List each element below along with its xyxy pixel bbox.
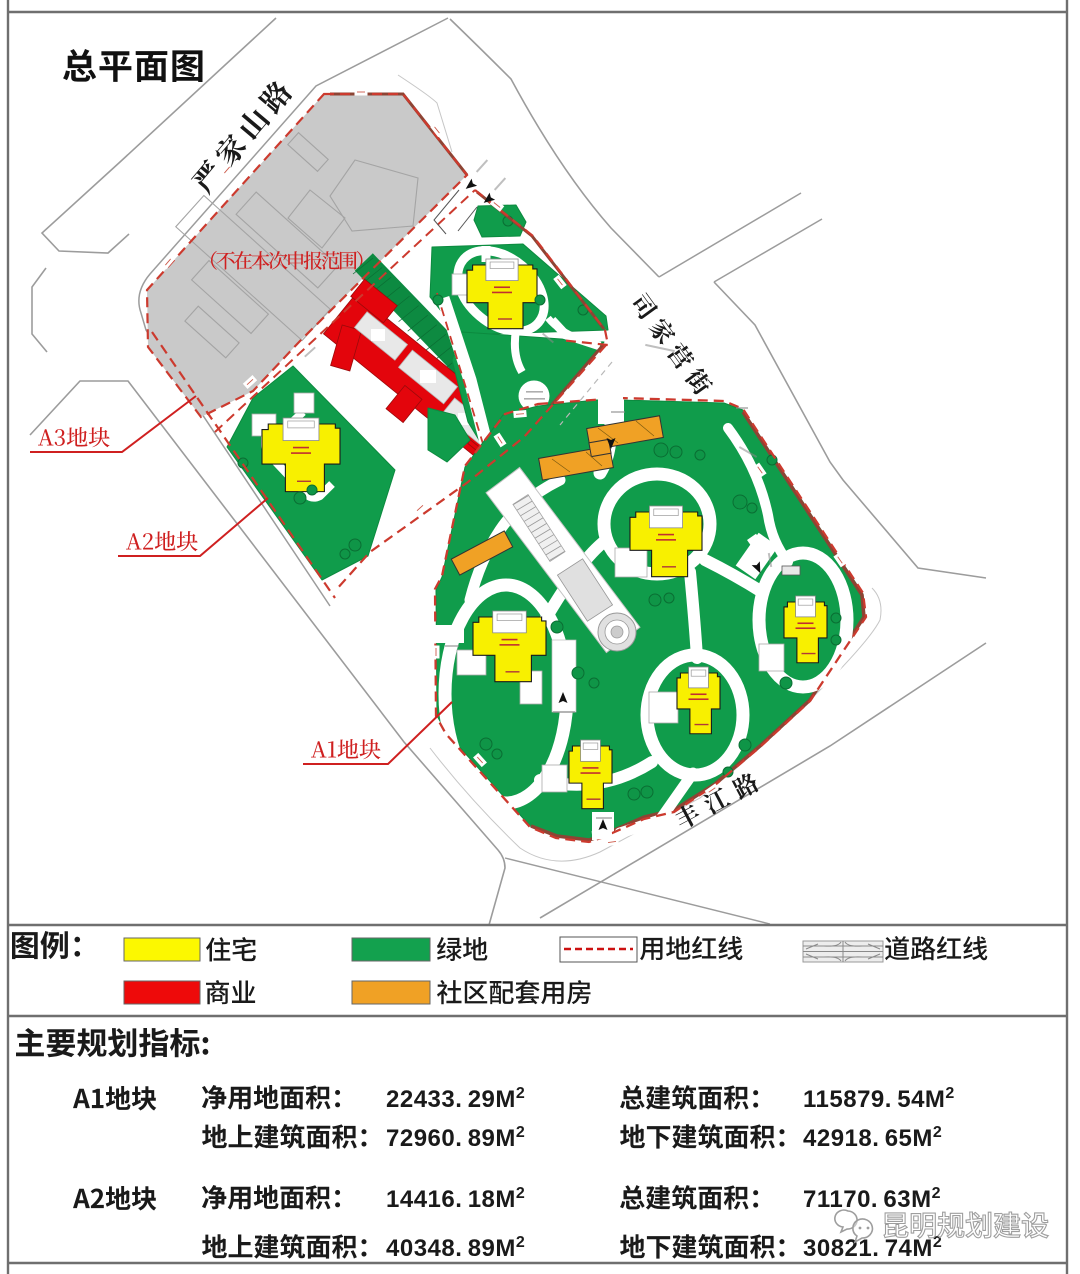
svg-text:22433. 29M2: 22433. 29M2 <box>386 1085 525 1113</box>
svg-text:115879. 54M2: 115879. 54M2 <box>803 1085 955 1113</box>
svg-text:40348. 89M2: 40348. 89M2 <box>386 1234 525 1262</box>
svg-text:14416. 18M2: 14416. 18M2 <box>386 1185 525 1213</box>
svg-text:72960. 89M2: 72960. 89M2 <box>386 1124 525 1152</box>
svg-text:30821. 74M2: 30821. 74M2 <box>803 1234 942 1262</box>
svg-text:71170. 63M2: 71170. 63M2 <box>803 1185 941 1213</box>
svg-text:42918. 65M2: 42918. 65M2 <box>803 1124 942 1152</box>
